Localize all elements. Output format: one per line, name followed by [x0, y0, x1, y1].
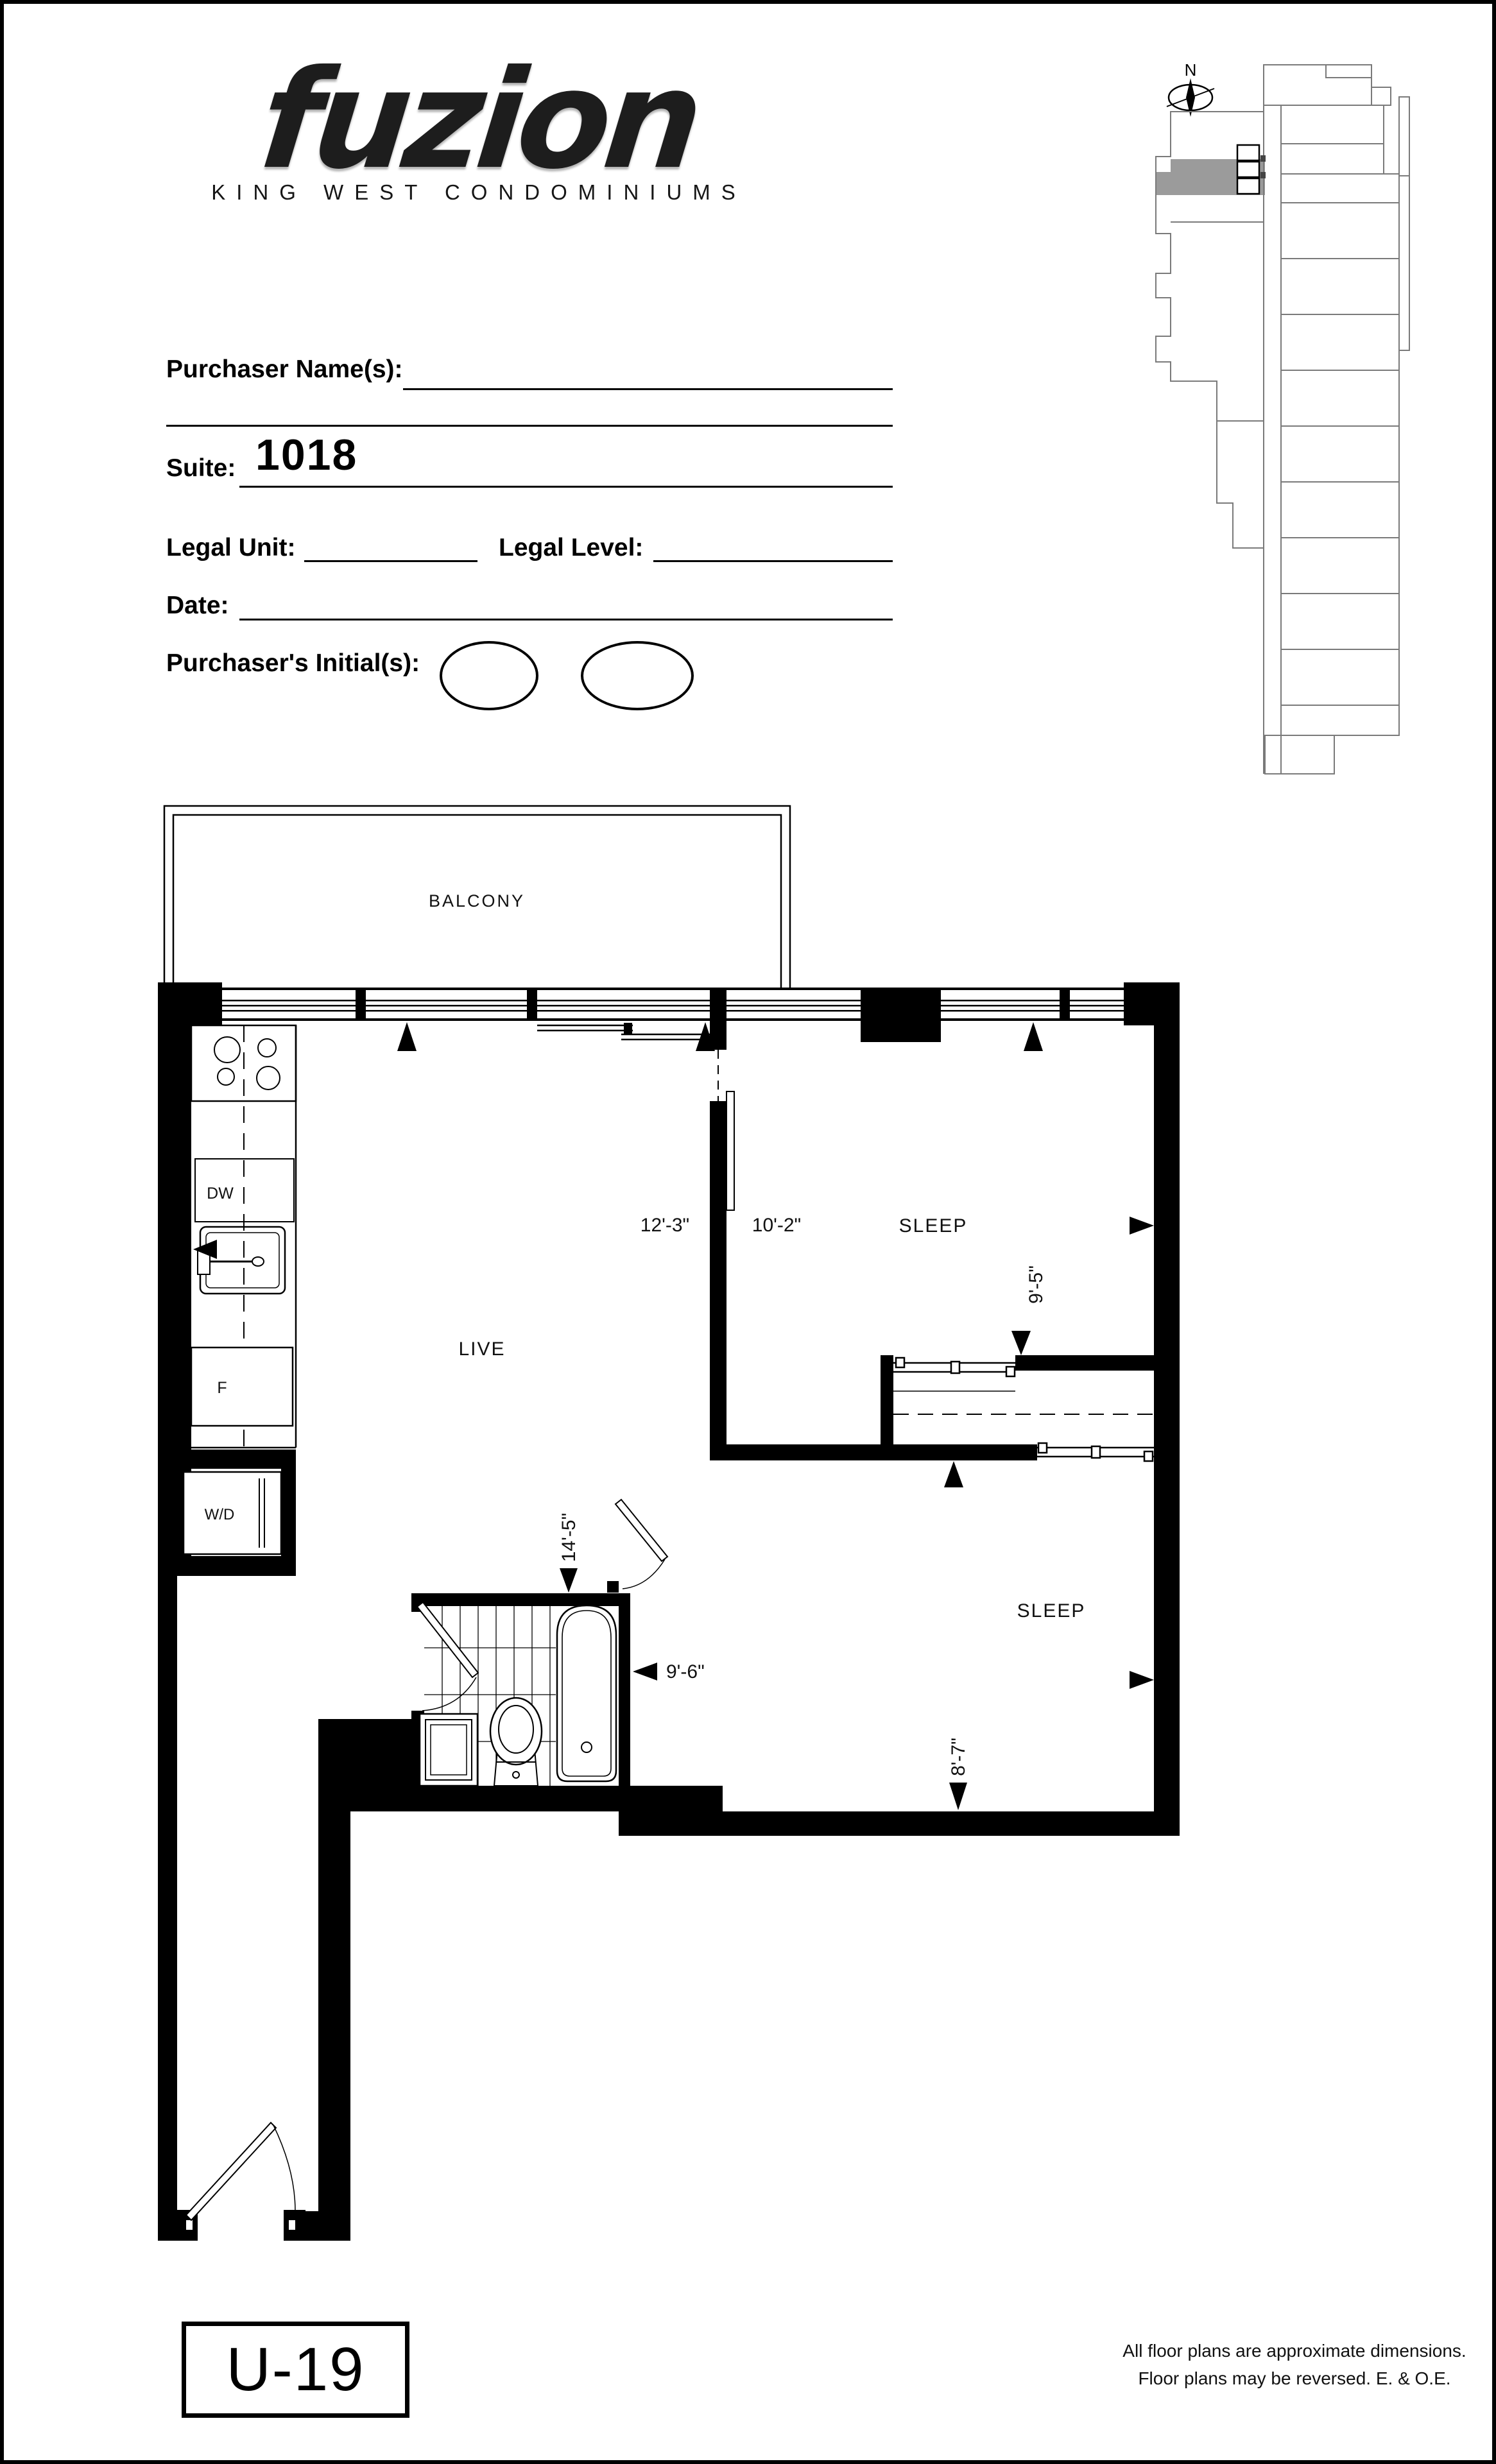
disclaimer-line-1: All floor plans are approximate dimensio…: [1086, 2337, 1496, 2365]
date-label: Date:: [166, 592, 229, 620]
suite-line: [239, 486, 893, 488]
shaft-block: [861, 988, 941, 1042]
window-mullion: [527, 988, 537, 1021]
arrow-up-closet: [944, 1461, 963, 1487]
bath-right-wall: [619, 1593, 630, 1811]
dim-bath-width: 9'-6": [666, 1661, 705, 1682]
arrow-down-14-5: [560, 1568, 578, 1593]
bedroom-door: [607, 1500, 667, 1593]
keyplan-building: [1156, 65, 1409, 774]
pocket-door-panel: [727, 1091, 734, 1210]
closet-bottom-wall: [710, 1444, 1037, 1460]
purchaser-name-line: [403, 388, 893, 390]
window-wall: [158, 982, 1180, 1043]
disclaimer-line-2: Floor plans may be reversed. E. & O.E.: [1086, 2365, 1496, 2392]
sleep2-bottom-wall: [723, 1811, 1180, 1836]
washer-dryer-label: W/D: [205, 1506, 235, 1523]
window-mullion: [1060, 988, 1070, 1021]
initials-label: Purchaser's Initial(s):: [166, 649, 420, 678]
keyplan: N: [1127, 62, 1467, 783]
arrow-right-sleep1: [1130, 1217, 1154, 1235]
arrow-up: [1024, 1022, 1043, 1051]
arrow-down-8-7: [949, 1783, 967, 1810]
dim-sleep2-depth: 8'-7": [948, 1738, 969, 1776]
logo: fuzion KING WEST CONDOMINIUMS: [139, 49, 819, 205]
left-wall-lower: [158, 1576, 177, 2241]
initials-oval-1: [440, 641, 538, 710]
purchaser-name-label: Purchaser Name(s):: [166, 355, 402, 384]
partition-stub: [710, 988, 727, 1050]
disclaimer: All floor plans are approximate dimensio…: [1086, 2337, 1496, 2393]
arrow-up: [397, 1022, 417, 1051]
toilet: [490, 1698, 542, 1786]
initials-oval-2: [581, 641, 694, 710]
floorplan: BALCONY: [158, 800, 1204, 2256]
sink: [198, 1227, 285, 1294]
legal-level-line: [653, 560, 893, 562]
north-label: N: [1185, 62, 1197, 80]
unit-code: U-19: [226, 2334, 365, 2405]
balcony-label: BALCONY: [429, 891, 525, 911]
sleep1-label: SLEEP: [899, 1215, 968, 1236]
kitchen: DW F W/D: [184, 1025, 296, 1554]
live-label: LIVE: [458, 1339, 505, 1360]
suite-value: 1018: [255, 430, 357, 480]
closet-left-stub: [881, 1355, 893, 1460]
legal-unit-label: Legal Unit:: [166, 534, 296, 562]
north-arrow: N: [1167, 62, 1214, 117]
closet-track-1: [893, 1358, 1015, 1376]
entry-door: [186, 2123, 295, 2220]
brand-wordmark: fuzion: [131, 49, 826, 192]
vanity-sink: [420, 1714, 477, 1786]
dim-sleep1-depth: 9'-5": [1026, 1265, 1047, 1304]
purchaser-name-line-2: [166, 425, 893, 427]
dimension-arrows: [193, 1022, 1154, 1810]
date-line: [239, 619, 893, 620]
dim-sleep1-width: 10'-2": [752, 1215, 801, 1236]
dim-live-width: 12'-3": [641, 1215, 689, 1236]
floorplan-sheet: fuzion KING WEST CONDOMINIUMS Purchaser …: [0, 0, 1496, 2464]
partition-wall: [710, 1101, 727, 1444]
unit-code-box: U-19: [182, 2322, 409, 2418]
suite-label: Suite:: [166, 454, 236, 483]
bathroom: [417, 1602, 616, 1786]
legal-unit-line: [304, 560, 477, 562]
step-block: [619, 1786, 723, 1836]
closet-track-2: [1037, 1443, 1154, 1461]
legal-level-label: Legal Level:: [499, 534, 643, 562]
window-mullion: [356, 988, 366, 1021]
dim-live-depth: 14'-5": [558, 1513, 580, 1562]
fridge: [191, 1347, 293, 1426]
fridge-label: F: [217, 1379, 227, 1397]
arrow-right-sleep2: [1130, 1671, 1154, 1689]
arrow-left-9-6: [633, 1663, 657, 1681]
washer-dryer: W/D: [184, 1472, 281, 1554]
arrow-down-9-5: [1011, 1331, 1031, 1355]
dishwasher-label: DW: [207, 1185, 234, 1202]
bath-top-wall: [411, 1593, 630, 1606]
closet-top-wall: [1015, 1355, 1154, 1371]
right-wall: [1154, 988, 1180, 1836]
bathtub: [557, 1605, 616, 1781]
sleep2-label: SLEEP: [1017, 1600, 1086, 1621]
corridor-right-wall: [318, 1786, 350, 2241]
